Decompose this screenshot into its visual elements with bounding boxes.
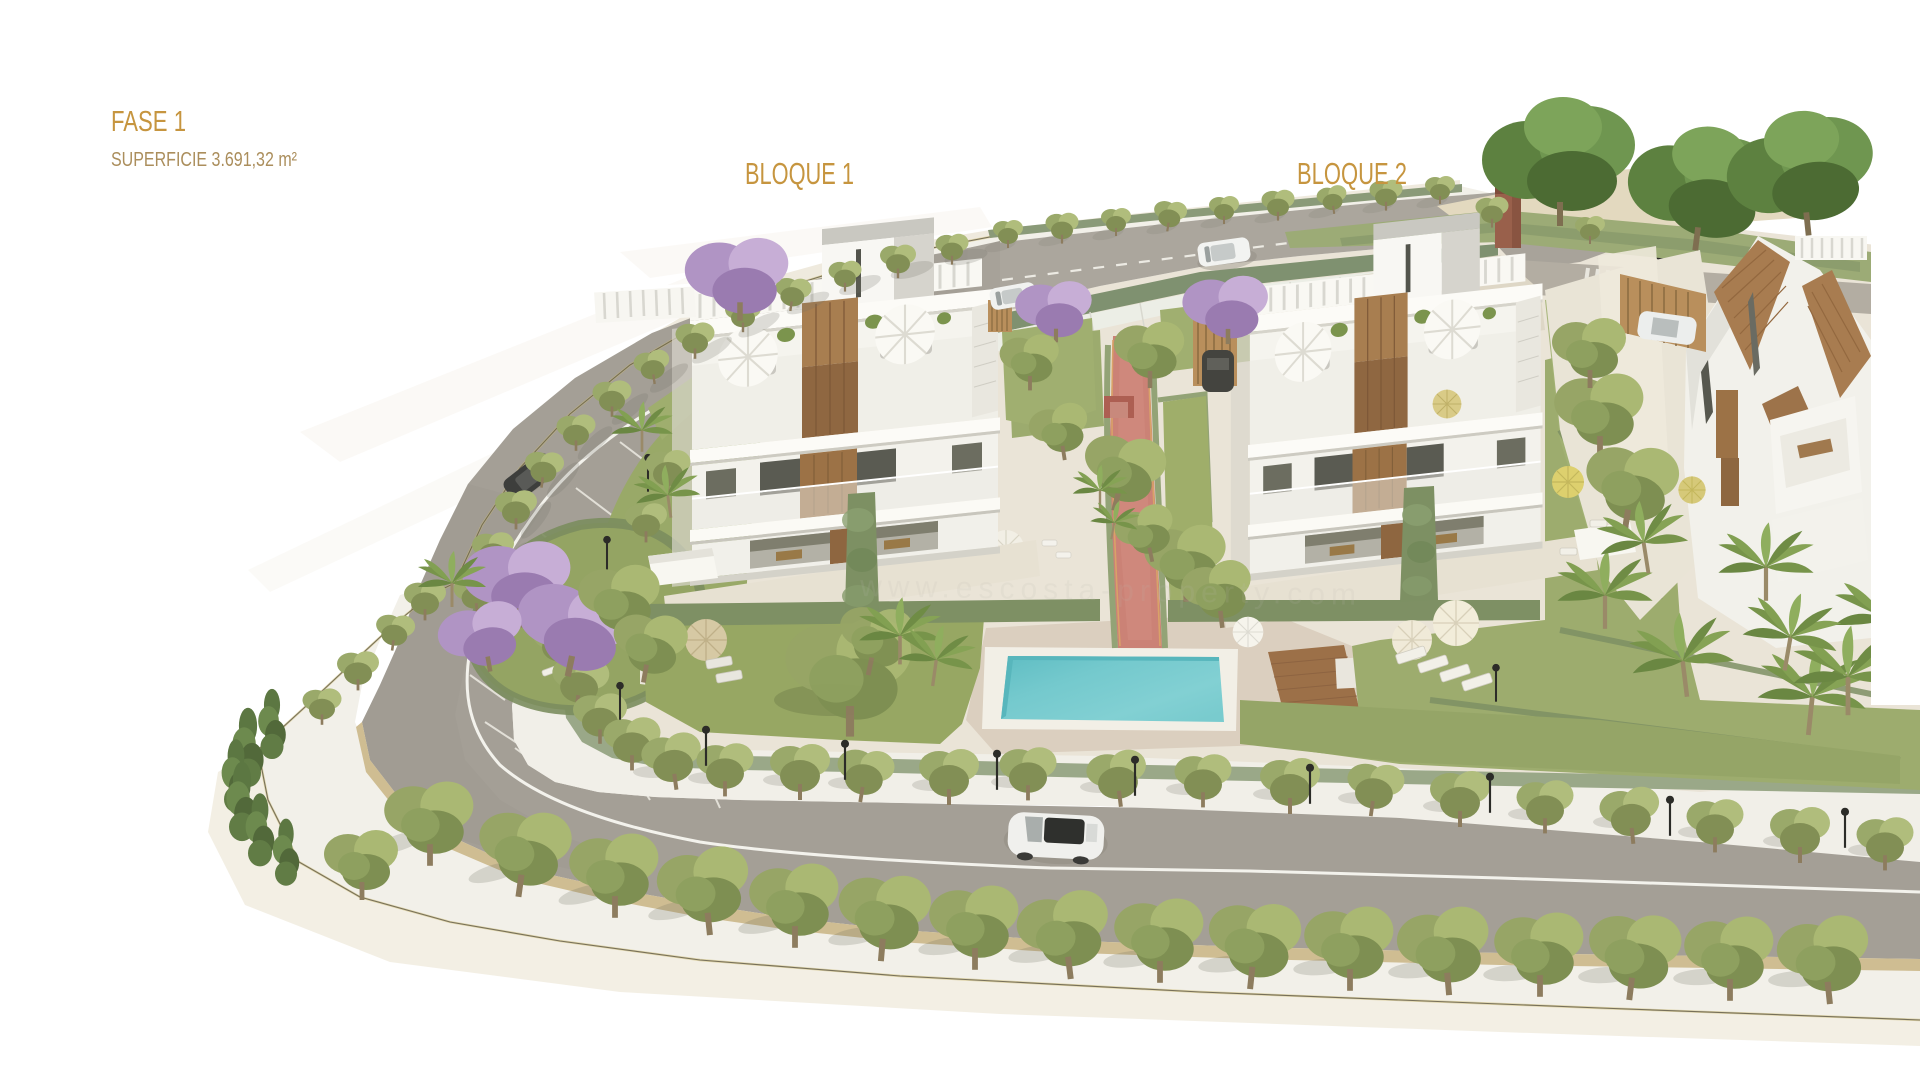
svg-text:FASE 1: FASE 1 (111, 106, 186, 138)
svg-text:SUPERFICIE 3.691,32 m²: SUPERFICIE 3.691,32 m² (111, 149, 297, 171)
svg-text:BLOQUE 1: BLOQUE 1 (745, 156, 854, 191)
svg-text:BLOQUE 2: BLOQUE 2 (1297, 156, 1407, 191)
